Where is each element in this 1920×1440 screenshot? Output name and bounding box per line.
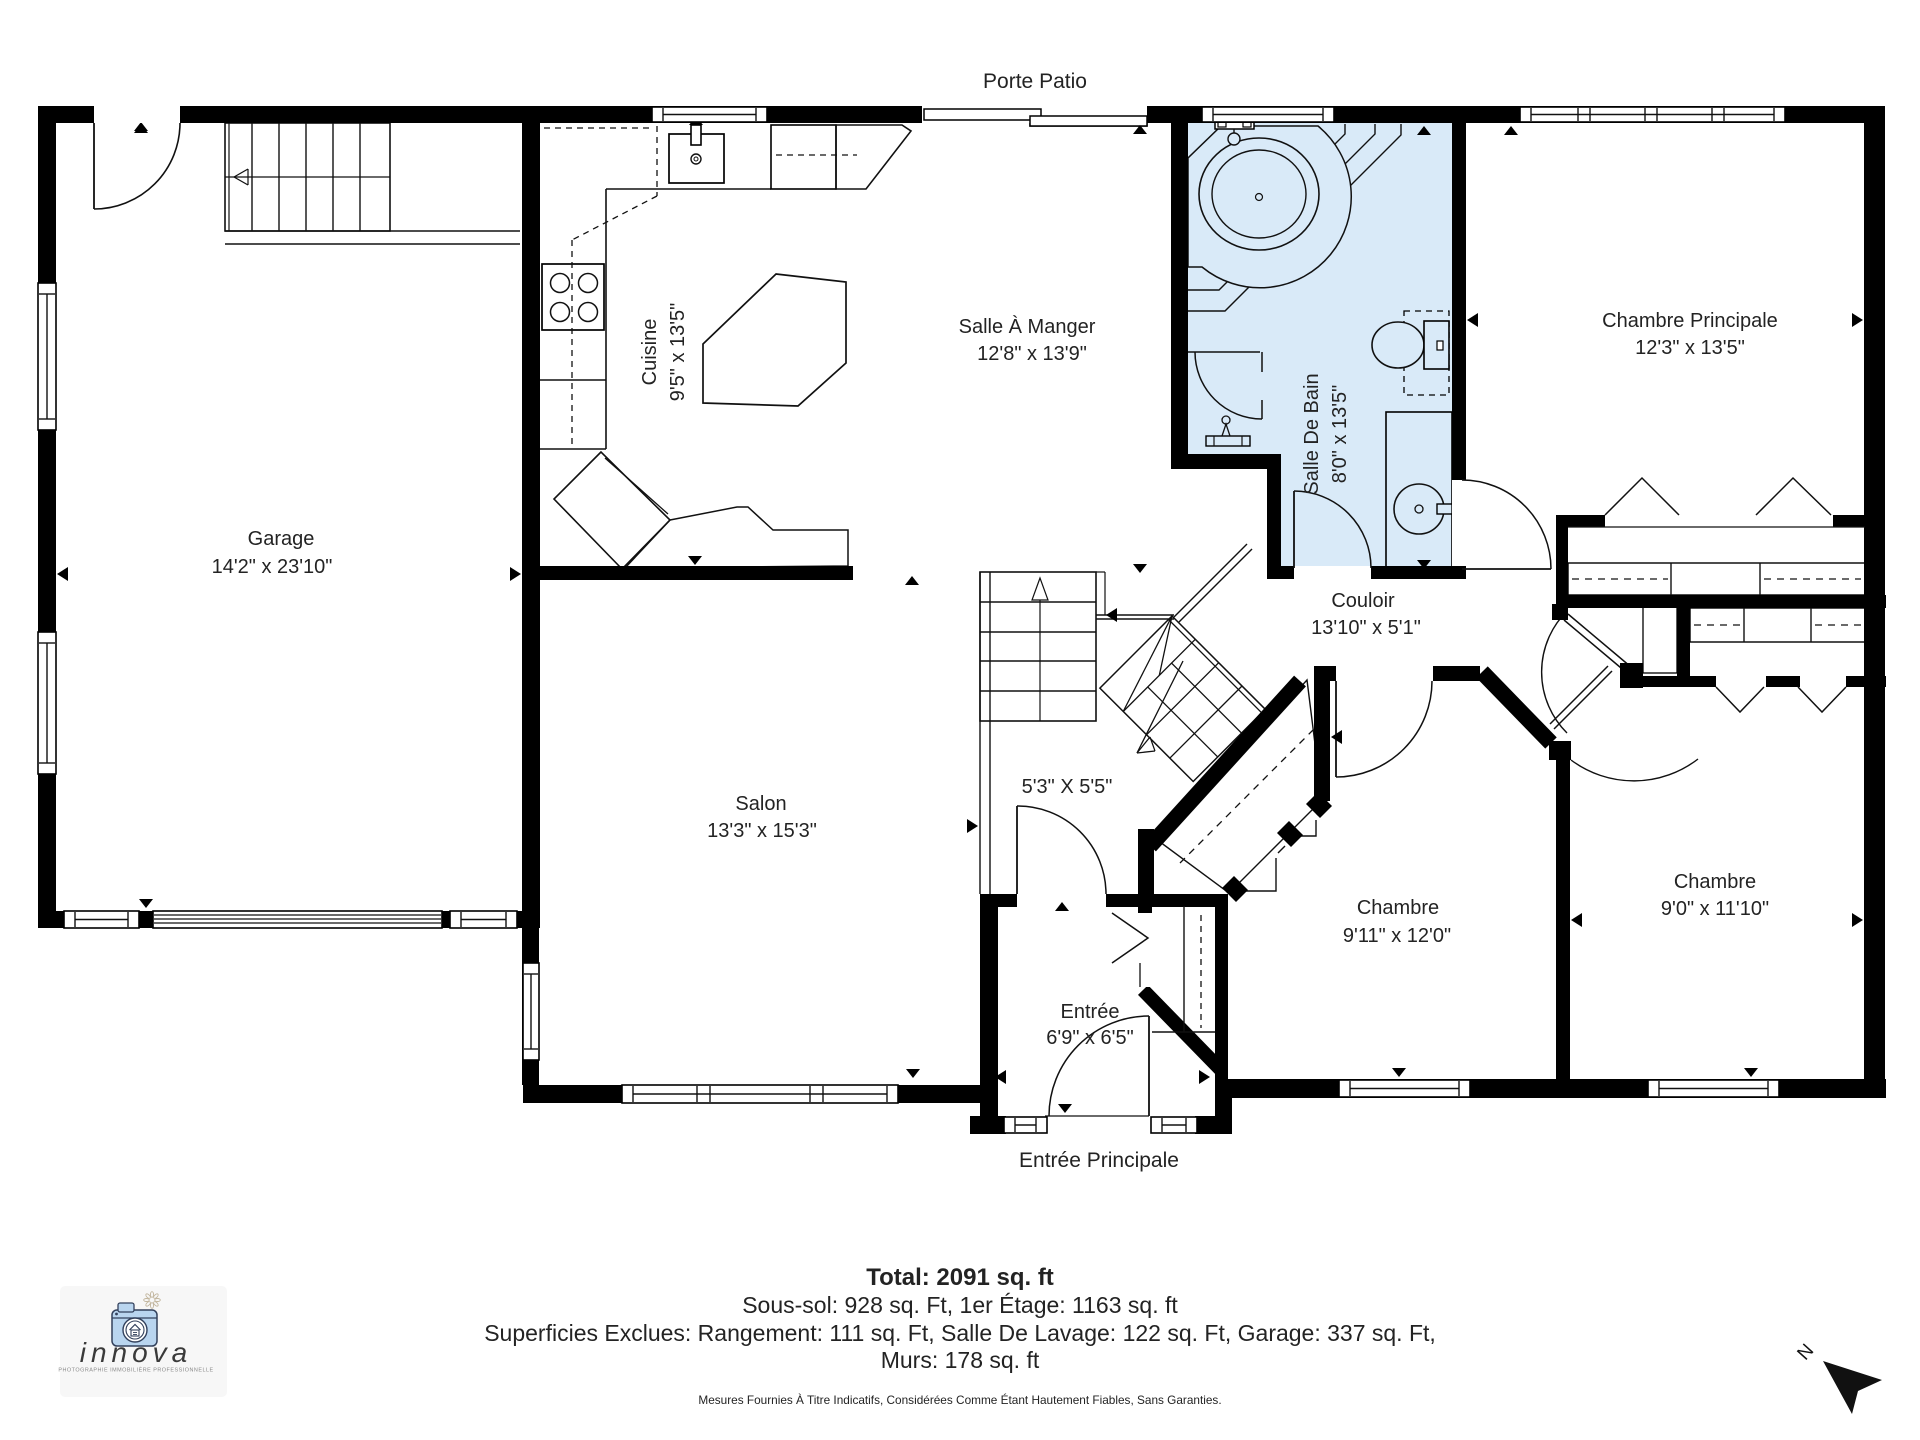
svg-text:9'11" x 12'0": 9'11" x 12'0" (1343, 925, 1451, 947)
svg-text:PHOTOGRAPHIE IMMOBILIÈRE PROFE: PHOTOGRAPHIE IMMOBILIÈRE PROFESSIONNELLE (58, 1367, 213, 1374)
svg-text:Mesures Fournies À Titre Indic: Mesures Fournies À Titre Indicatifs, Con… (698, 1393, 1221, 1407)
svg-text:Superficies Exclues: Rangement: Superficies Exclues: Rangement: 111 sq. … (484, 1320, 1436, 1346)
svg-text:Couloir: Couloir (1331, 590, 1395, 612)
svg-text:Chambre: Chambre (1674, 871, 1756, 893)
svg-text:9'5" x 13'5": 9'5" x 13'5" (667, 303, 689, 402)
svg-text:14'2" x 23'10": 14'2" x 23'10" (212, 556, 333, 578)
svg-text:Sous-sol: 928 sq. Ft, 1er Étag: Sous-sol: 928 sq. Ft, 1er Étage: 1163 sq… (742, 1292, 1178, 1318)
svg-text:Salon: Salon (735, 793, 786, 815)
svg-text:6'9" x 6'5": 6'9" x 6'5" (1046, 1027, 1133, 1049)
svg-text:innova: innova (80, 1337, 193, 1368)
svg-text:5'3" X 5'5": 5'3" X 5'5" (1022, 776, 1113, 798)
svg-text:Entrée: Entrée (1061, 1001, 1120, 1023)
svg-text:13'10" x 5'1": 13'10" x 5'1" (1311, 617, 1421, 639)
svg-text:9'0" x 11'10": 9'0" x 11'10" (1661, 898, 1769, 920)
svg-text:Chambre: Chambre (1357, 897, 1439, 919)
svg-text:Porte Patio: Porte Patio (983, 70, 1087, 93)
svg-text:Salle De Bain: Salle De Bain (1301, 373, 1323, 494)
svg-text:Entrée Principale: Entrée Principale (1019, 1149, 1179, 1172)
svg-text:12'8" x 13'9": 12'8" x 13'9" (977, 343, 1087, 365)
svg-text:Total: 2091 sq. ft: Total: 2091 sq. ft (866, 1264, 1054, 1291)
svg-text:13'3" x 15'3": 13'3" x 15'3" (707, 820, 817, 842)
svg-text:8'0" x 13'5": 8'0" x 13'5" (1329, 385, 1351, 484)
svg-text:Murs: 178 sq. ft: Murs: 178 sq. ft (881, 1347, 1040, 1373)
svg-text:12'3" x 13'5": 12'3" x 13'5" (1635, 337, 1745, 359)
svg-text:Cuisine: Cuisine (639, 319, 661, 386)
svg-text:Chambre Principale: Chambre Principale (1602, 310, 1778, 332)
svg-text:Salle À Manger: Salle À Manger (959, 315, 1096, 338)
svg-text:Garage: Garage (248, 528, 315, 550)
